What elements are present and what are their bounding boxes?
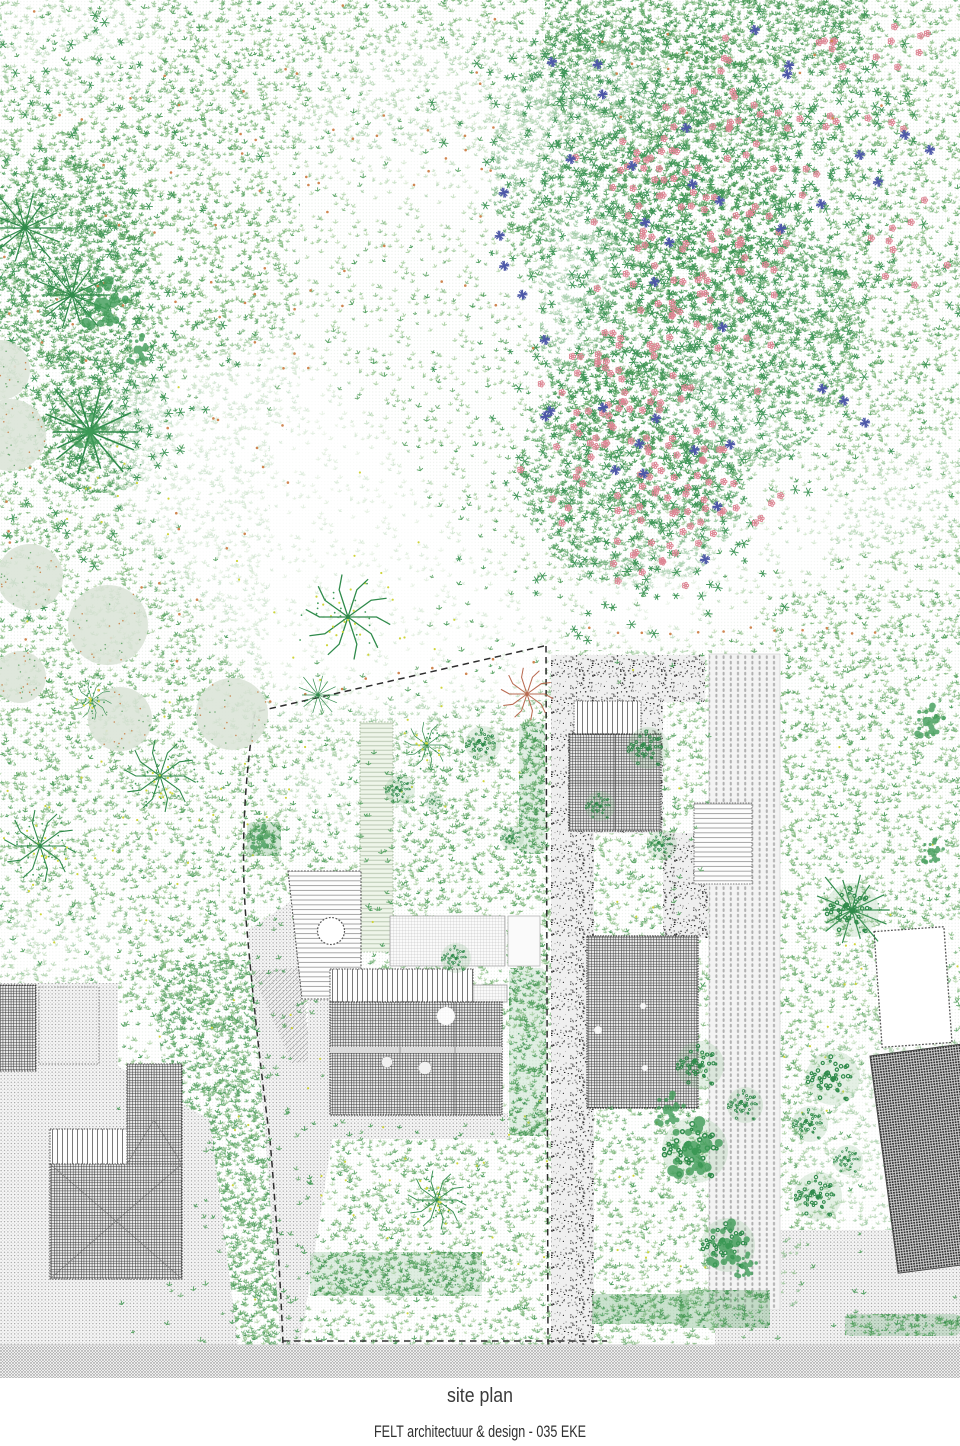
svg-text:FELT architectuur & design - 0: FELT architectuur & design - 035 EKE <box>374 1422 586 1441</box>
svg-text:site plan: site plan <box>447 1385 513 1407</box>
